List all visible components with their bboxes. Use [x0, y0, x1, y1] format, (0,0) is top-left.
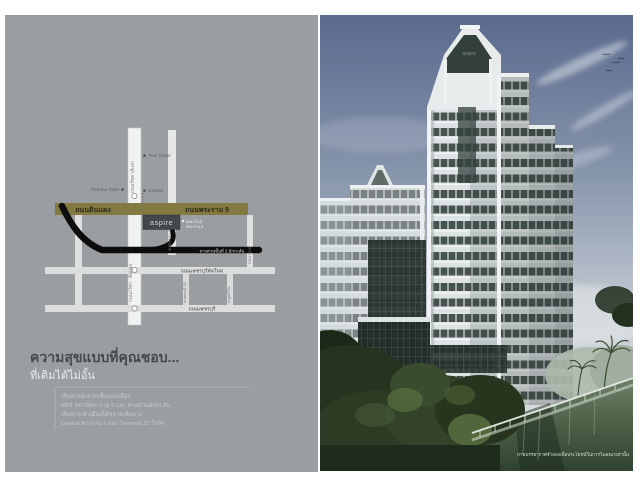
road-new-phetchaburi: [45, 267, 275, 274]
road-label-ratchadaphisek: ถนนรัชดาภิเษก: [130, 161, 136, 193]
mrt-station-icon: [132, 193, 137, 198]
landmark-central: Central: [148, 188, 163, 193]
road-label-din-daeng: ถนนดินแดง: [75, 206, 111, 214]
road-label-phetchaburi: ถนนเพชรบุรี: [189, 306, 216, 313]
landmark-dot-icon: [143, 189, 146, 192]
body-line-1: เดินทางสะดวกเชื่อมต่อเมือง: [61, 392, 131, 400]
map-panel: ถนนดินแดง ถนนพระราม 9 ทางด่วนขั้นที่ 2 ม…: [5, 15, 318, 472]
landmark-nine-line2: พระราม 9: [186, 224, 204, 229]
brochure-page: ถนนดินแดง ถนนพระราม 9 ทางด่วนขั้นที่ 2 ม…: [0, 0, 640, 480]
subheadline: ที่เติมได้ไม่อั้น: [30, 367, 95, 382]
road-label-rca: ถนน RCA: [247, 246, 252, 264]
road-label-rama9: ถนนพระราม 9: [185, 207, 229, 214]
road-phetchaburi: [45, 305, 275, 312]
landmark-fortune-town: Fortune Town: [91, 187, 119, 192]
road-label-soi-research: ซ.ศูนย์วิจัย: [227, 286, 231, 303]
building-photo: aspire: [320, 15, 633, 471]
road-label-soi-rama9: ซ.พระราม 9: [167, 229, 172, 251]
body-line-4: Central พระราม 9 และ Terminal 21 ใกล้ๆ: [61, 419, 165, 427]
body-line-2: MRT สถานีพระราม 9 และ ทางด่วนมักกะสัน: [61, 401, 170, 409]
building-render: aspire: [320, 15, 633, 471]
body-line-3: เดินทางเข้าเมืองได้หลายเส้นทาง: [61, 410, 142, 418]
crown-logo: aspire: [462, 51, 476, 57]
headline: ความสุขแบบที่คุณชอบ...: [30, 347, 179, 366]
road-label-new-phetchaburi: ถนนเพชรบุรีตัดใหม่: [181, 268, 223, 275]
landmark-true-tower: True Tower: [148, 153, 171, 158]
mrt-station-icon: [132, 267, 137, 272]
landmark-dot-icon: [143, 154, 146, 157]
project-badge-label: aspire: [150, 218, 173, 227]
mrt-station-icon: [132, 306, 137, 311]
photo-disclaimer-caption: ภาพบรรยากาศจำลองเพื่อประโยชน์ในการโฆษณาเ…: [517, 451, 630, 457]
mrt-rama9-label: พระราม 9: [140, 192, 145, 210]
landmark-dot-icon: [121, 188, 124, 191]
landmark-dot-icon: [182, 220, 184, 222]
expressway-label: ทางด่วนขั้นที่ 2 มักกะสัน: [200, 247, 245, 253]
location-map: ถนนดินแดง ถนนพระราม 9 ทางด่วนขั้นที่ 2 ม…: [5, 15, 318, 472]
